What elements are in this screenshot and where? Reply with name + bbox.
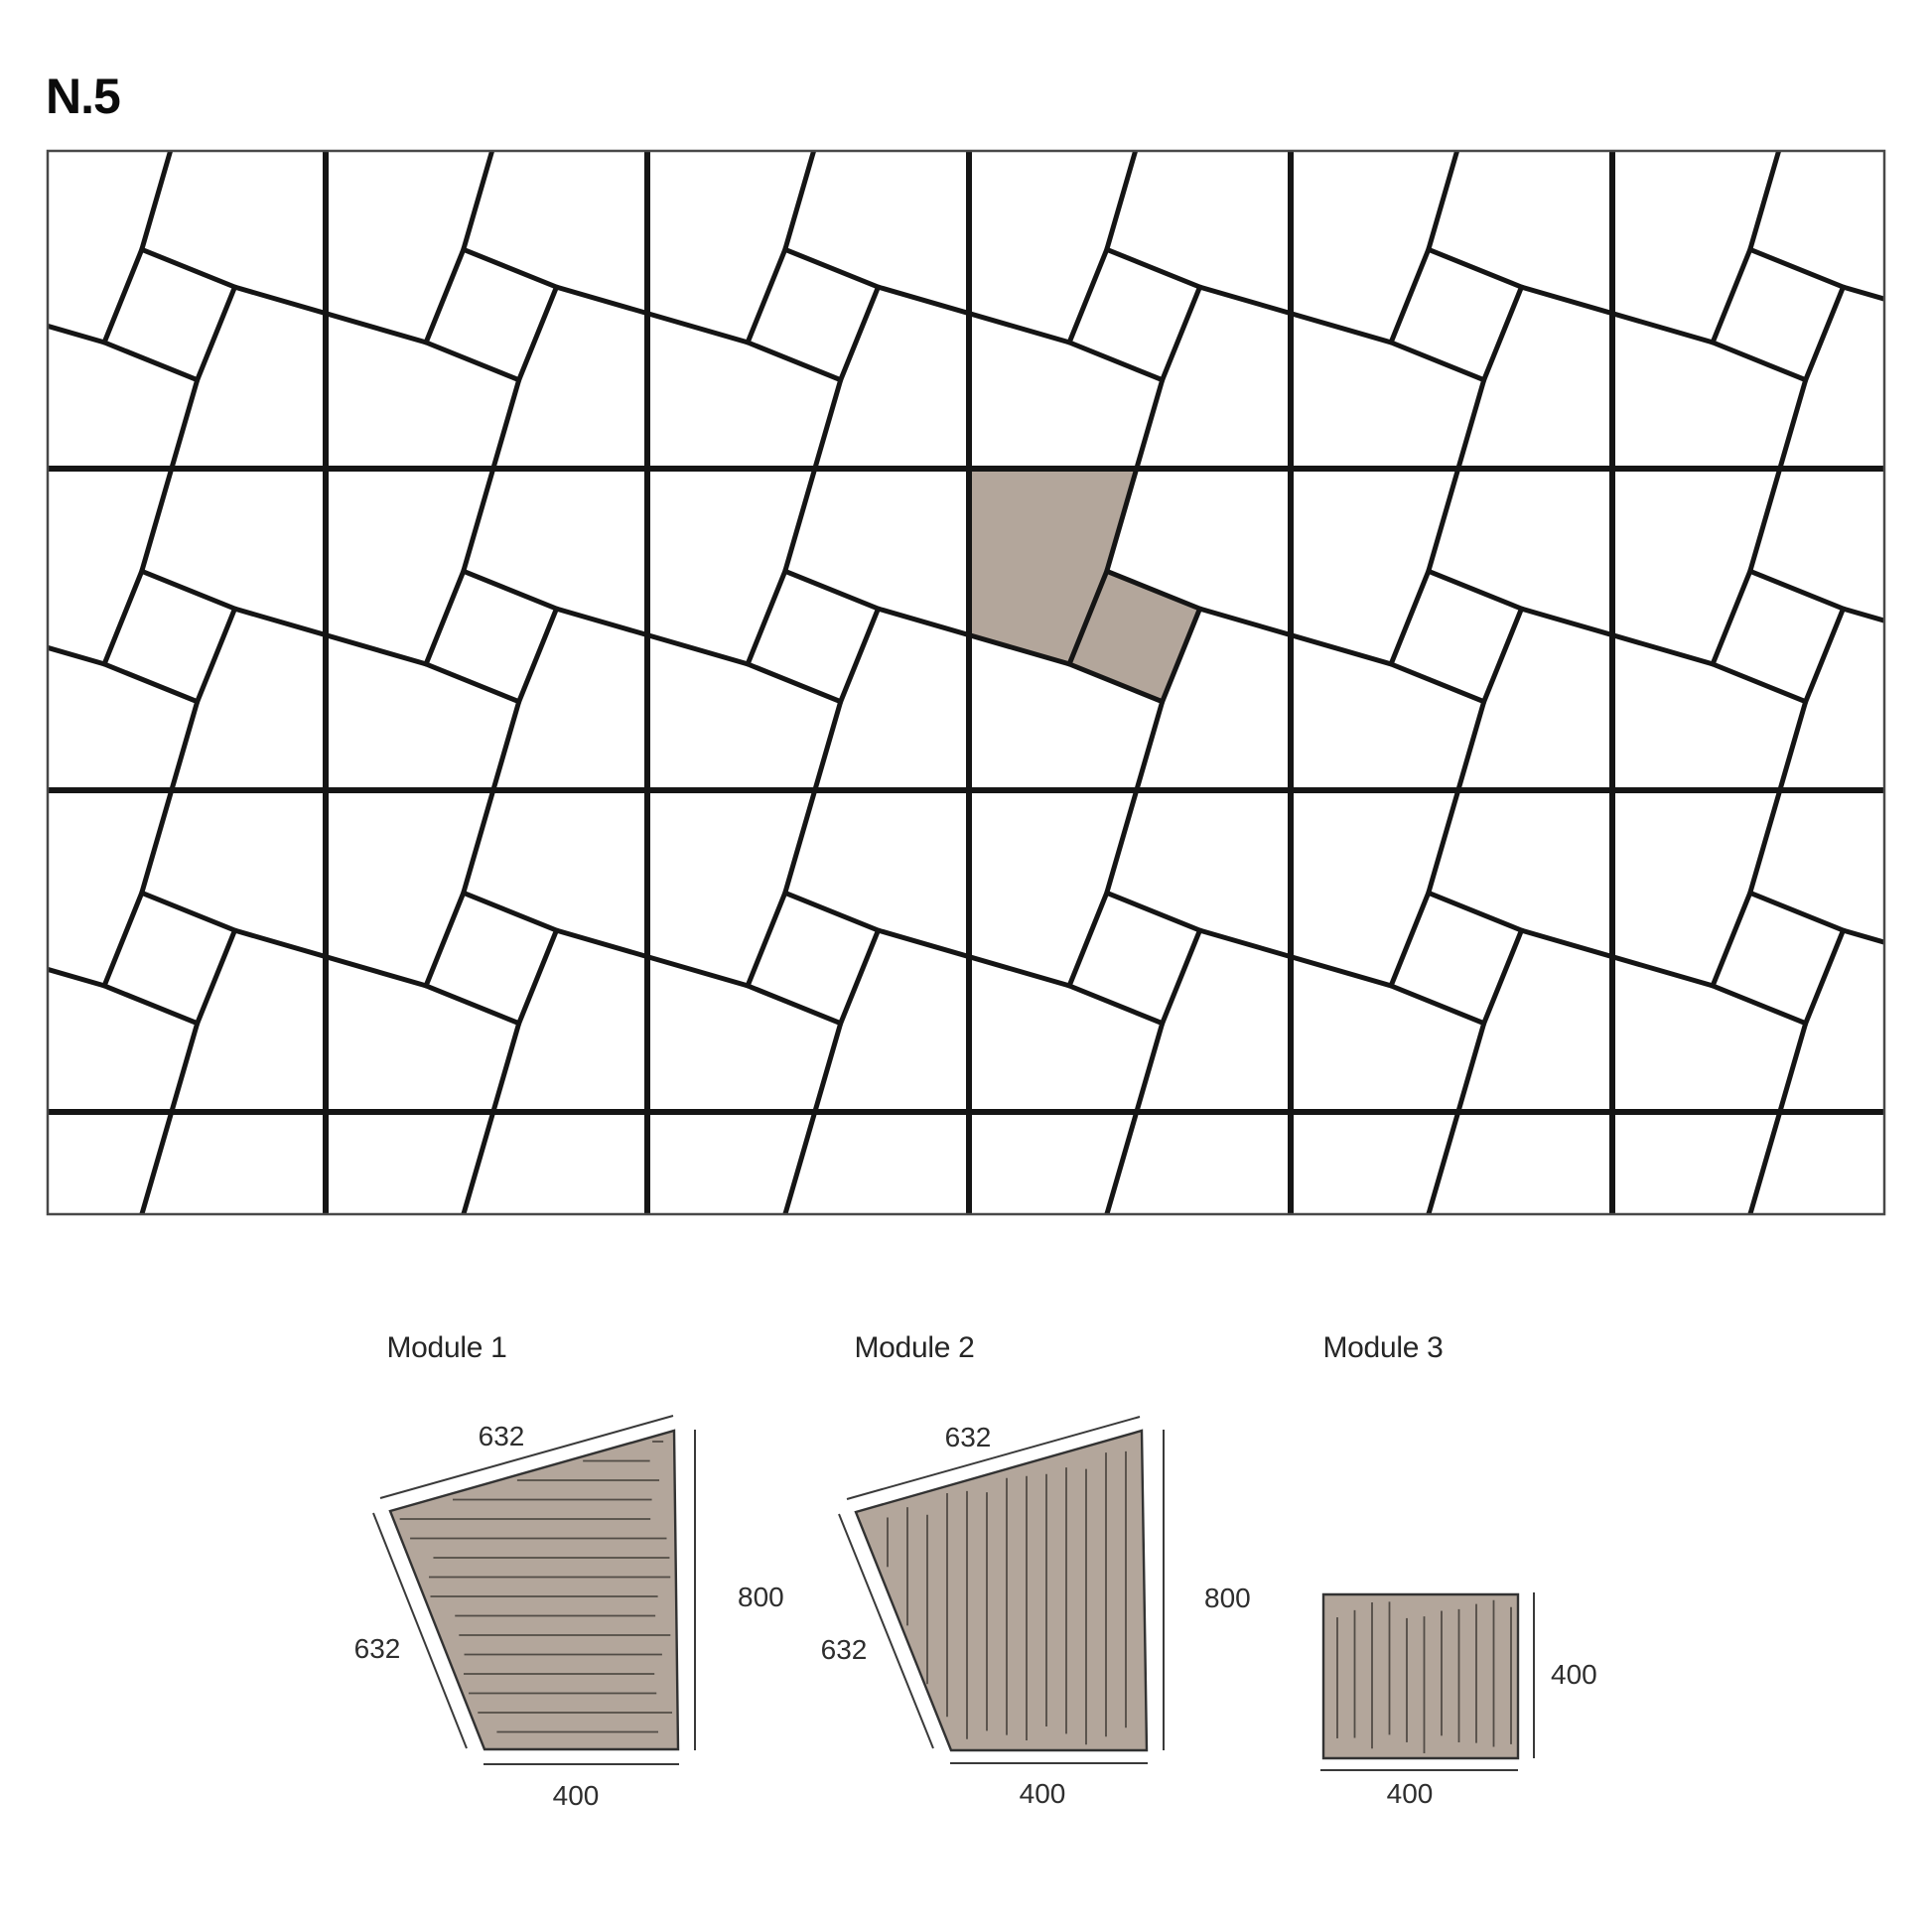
- small-square-tile: [1391, 1214, 1521, 1344]
- module-shape: [1323, 1594, 1518, 1758]
- steep-tile-edge: [1750, 1345, 1806, 1537]
- shallow-tile-edge: [1522, 1252, 1714, 1308]
- module-shape: [390, 1431, 678, 1749]
- module3-title: Module 3: [1322, 1331, 1443, 1364]
- shallow-tile-edge: [0, 0, 104, 21]
- small-square-tile: [1069, 0, 1199, 59]
- small-square-tile: [1713, 0, 1843, 59]
- steep-tile-edge: [142, 1345, 198, 1537]
- module3-dim-bottom: 400: [1387, 1778, 1434, 1809]
- steep-tile-edge: [1429, 1345, 1484, 1537]
- steep-tile-edge: [785, 1345, 841, 1537]
- pattern-cell-motif: [0, 1214, 104, 1536]
- module2-dim-bottom: 400: [1020, 1778, 1066, 1809]
- shallow-tile-edge: [1844, 0, 1932, 21]
- shallow-tile-edge: [235, 1252, 427, 1308]
- shallow-tile-edge: [879, 1252, 1070, 1308]
- module2-dim-top: 632: [945, 1422, 992, 1452]
- module2-dim-left: 632: [821, 1634, 868, 1665]
- module1-dim-right: 800: [738, 1582, 784, 1612]
- shallow-tile-edge: [557, 0, 749, 21]
- module1-title: Module 1: [386, 1331, 506, 1364]
- small-square-tile: [748, 0, 878, 59]
- small-square-tile: [426, 1214, 556, 1344]
- shallow-tile-edge: [1844, 1252, 1932, 1308]
- small-square-tile: [426, 0, 556, 59]
- shallow-tile-edge: [1200, 1252, 1392, 1308]
- catalog-page: N.5 Module 1 Module 2 Module 3 632 632 8…: [0, 0, 1932, 1932]
- pattern-cell-motif: [1713, 1214, 1932, 1536]
- shallow-tile-edge: [1200, 0, 1392, 21]
- module3-dim-right: 400: [1551, 1659, 1597, 1690]
- shallow-tile-edge: [557, 1252, 749, 1308]
- small-square-tile: [1713, 1214, 1843, 1344]
- pattern-cell-motif: [1391, 1214, 1713, 1536]
- small-square-tile: [748, 1214, 878, 1344]
- module-diagram-3: [1320, 1592, 1534, 1770]
- small-square-tile: [104, 0, 234, 59]
- module-diagram-1: [373, 1416, 695, 1764]
- pattern-cell-motif: [104, 1214, 426, 1536]
- small-square-tile: [1391, 0, 1521, 59]
- module2-dim-right: 800: [1204, 1583, 1251, 1613]
- module1-dim-top: 632: [479, 1421, 525, 1451]
- shallow-tile-edge: [235, 0, 427, 21]
- module-shape: [856, 1431, 1147, 1750]
- laying-pattern-diagram: Module 1 Module 2 Module 3 632 632 800 4…: [0, 0, 1932, 1932]
- small-square-tile: [1069, 1214, 1199, 1344]
- module-shape-diagrams: [373, 1416, 1534, 1770]
- module-diagram-2: [839, 1417, 1164, 1763]
- shallow-tile-edge: [879, 0, 1070, 21]
- module2-title: Module 2: [854, 1331, 974, 1364]
- shallow-tile-edge: [1522, 0, 1714, 21]
- shallow-tile-edge: [0, 1252, 104, 1308]
- module1-dim-bottom: 400: [553, 1780, 600, 1811]
- pattern-clip-group: [0, 0, 1932, 1536]
- tiling-pattern-board: [0, 0, 1932, 1536]
- small-square-tile: [104, 1214, 234, 1344]
- module1-dim-left: 632: [354, 1633, 401, 1664]
